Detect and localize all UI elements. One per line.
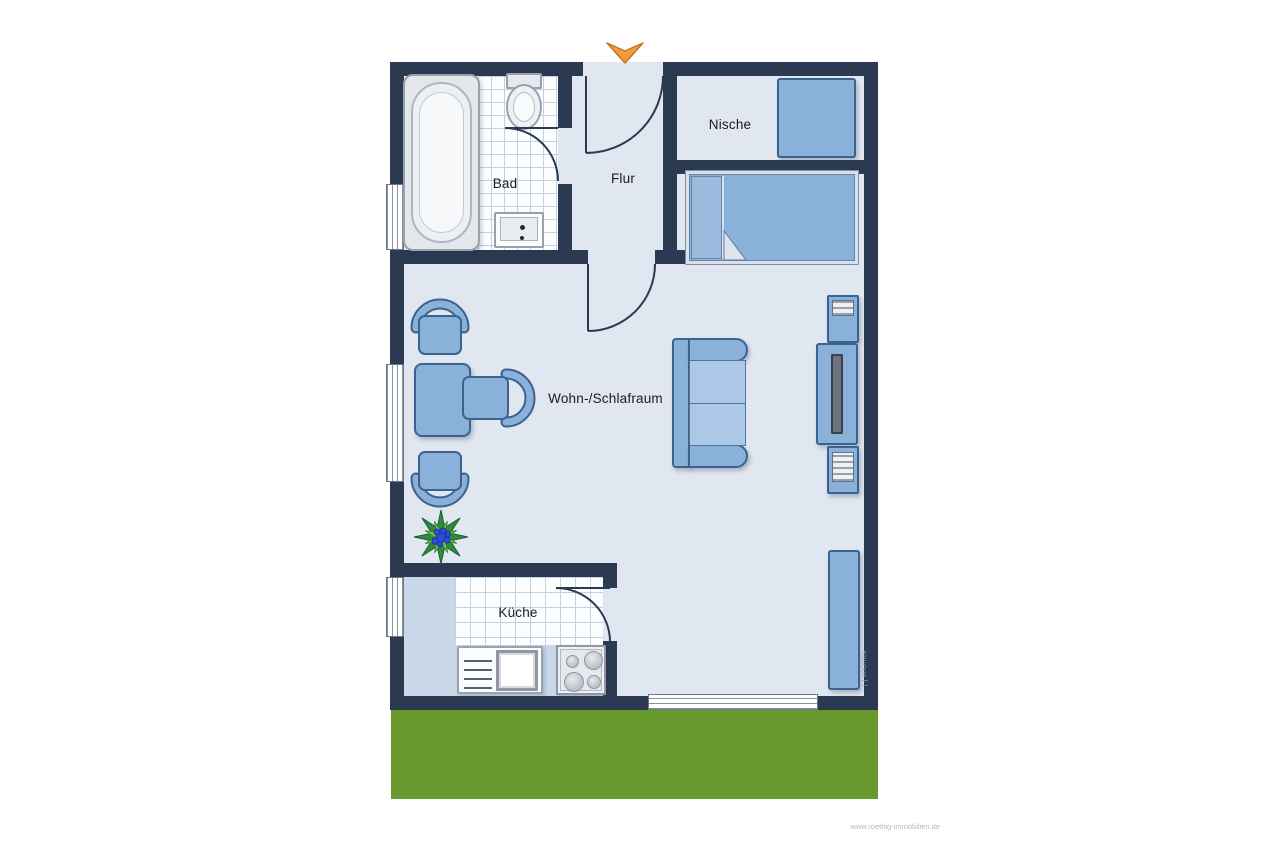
chair-north [416, 304, 464, 354]
label-kueche: Küche [482, 605, 554, 620]
chair-south [416, 452, 464, 502]
symbols-layer [0, 0, 1263, 842]
label-bad: Bad [478, 176, 532, 191]
bed-blanket-fold [724, 231, 746, 260]
website-watermark: www.roethig-immobilien.de [843, 822, 940, 831]
label-wohnschlafraum: Wohn-/Schlafraum [528, 391, 683, 406]
entrance-arrow-icon [607, 43, 643, 63]
label-flur: Flur [592, 171, 654, 186]
hall-door-swing [588, 264, 655, 331]
bath-door-swing [505, 128, 558, 181]
floorplan-page: Bad Flur Nische Wohn-/Schlafraum Küche [… [0, 0, 1263, 842]
label-nische: Nische [694, 117, 766, 132]
entrance-door-swing [586, 76, 663, 153]
chair-east [463, 374, 530, 422]
software-watermark: [ ] onOffice [861, 634, 868, 686]
plant [414, 510, 468, 564]
kitchen-door-swing [556, 588, 610, 642]
